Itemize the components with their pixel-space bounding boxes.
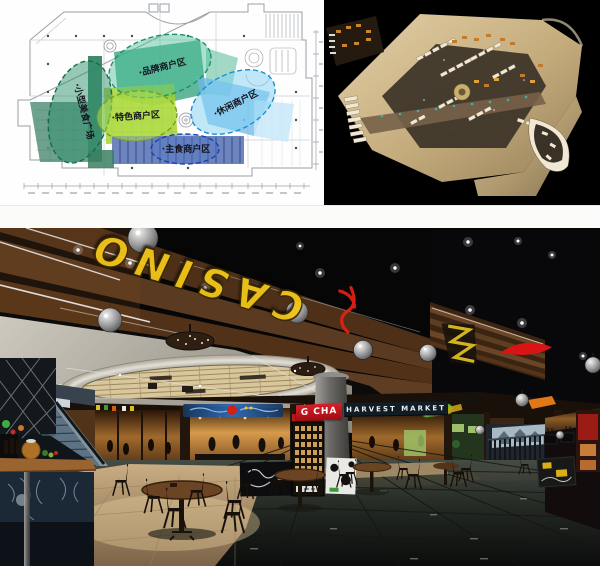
zone-label-staple: ·主食商户区: [162, 143, 210, 155]
gong-cha-sign: G CHA: [296, 403, 342, 421]
round-kiosk: [454, 84, 470, 100]
aerial-render: [324, 0, 600, 205]
floor-plan-drawing: ·品牌商户区 ·特色商户区 ·休闲商户区 ·主食商户区 ·小型美食广场: [0, 0, 324, 205]
white-divider: [0, 205, 600, 228]
floor-plan-panel: ·品牌商户区 ·特色商户区 ·休闲商户区 ·主食商户区 ·小型美食广场: [0, 0, 324, 205]
harvest-market-sign: HARVEST MARKET: [344, 401, 448, 417]
right-kiosk: [537, 408, 600, 530]
design-collage: ·品牌商户区 ·特色商户区 ·休闲商户区 ·主食商户区 ·小型美食广场: [0, 0, 600, 566]
interior-render-panel: [0, 228, 600, 566]
interior-scene: [0, 228, 600, 566]
left-lattice: [0, 358, 56, 438]
aerial-render-panel: [324, 0, 600, 205]
